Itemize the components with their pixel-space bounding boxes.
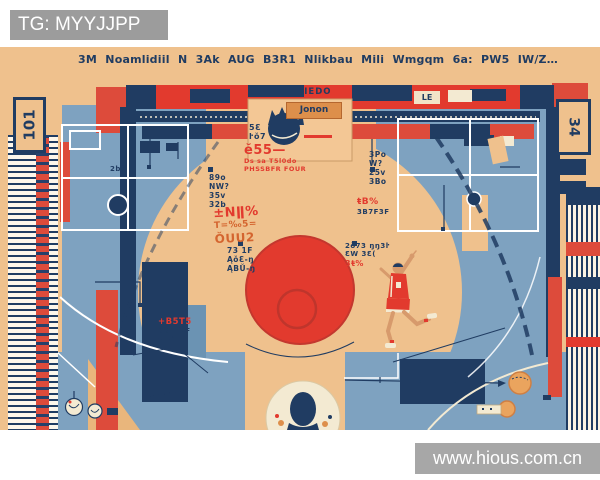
band-chip-jonon: Jonon <box>286 102 342 119</box>
corner-box-left: 101 <box>13 97 46 153</box>
left-ruler-red-band <box>36 135 49 430</box>
top-word: 6a: <box>453 53 473 66</box>
top-word: Wmgqm <box>393 53 445 66</box>
top-word: AUG <box>228 53 255 66</box>
website-watermark-text: www.hious.com.cn <box>433 448 582 469</box>
band-chip-le: LE <box>414 91 440 104</box>
telegram-watermark-banner: TG: MYYJJPP <box>10 10 168 40</box>
corner-right-label: 34 <box>565 117 581 136</box>
corner-box-right: 34 <box>556 99 591 155</box>
barcode-block <box>566 187 600 205</box>
annotation-mid2: 2ŏ73 ŋŋ3ŀ ƐW 3Ɛ( 3ŧ% <box>345 242 390 268</box>
barcode-block <box>566 337 600 347</box>
annotation-right-red: ŧB% 3B7F3F <box>357 197 390 216</box>
corner-left-label: 101 <box>21 109 39 140</box>
top-word: N <box>178 53 187 66</box>
top-word: Nlikbau <box>304 53 353 66</box>
top-word: Noamlidiil <box>105 53 169 66</box>
top-word: Mili <box>361 53 384 66</box>
annotation-low-left: 73 1F ĄŏƐ-ŋ ĄBŬ-ŋ <box>227 247 256 274</box>
band-label-piedo: PIEDO <box>297 87 331 97</box>
annotation-mid-navy: 5Ɛ ŀŏ7 <box>249 123 266 142</box>
annotation-left-navy: 89o NW? 35v 32b <box>209 174 229 209</box>
annotation-left-red: ±Nǁ% T=‰5= ŎUU2 <box>213 204 260 246</box>
left-ruler-strip <box>8 135 58 430</box>
barcode-block <box>566 277 600 289</box>
top-word: PW5 <box>481 53 509 66</box>
top-gibberish-row: 3M Noamlidiil N 3Ak AUG B3R1 Nlikbau Mil… <box>78 53 558 66</box>
screenshot-stage: TG: MYYJJPP <box>0 0 600 480</box>
annotation-bottom-red: +B5T5 3B7F3F Ɛ 1ŀ <box>158 317 192 343</box>
basketball-poster-illustration: 101 34 3M Noamlidiil N 3Ak AUG B3R1 Nlik… <box>0 47 600 430</box>
top-word: IW/Z… <box>518 53 558 66</box>
right-barcode-strip <box>566 187 600 430</box>
annotation-right-navy: 3Po W? 25v 3Bo <box>369 151 387 186</box>
top-word: 3Ak <box>196 53 220 66</box>
annotation-center: ĕ55— Ds sa T5l0do PHSSBFR FOUR <box>244 143 306 174</box>
barcode-block <box>566 242 600 256</box>
left-hoop-dot <box>108 195 128 215</box>
website-watermark-banner: www.hious.com.cn <box>415 443 600 474</box>
annotation-tiny-left: 2bŏ <box>110 165 126 173</box>
telegram-watermark-text: TG: MYYJJPP <box>18 14 140 36</box>
top-word: 3M <box>78 53 97 66</box>
top-word: B3R1 <box>263 53 296 66</box>
